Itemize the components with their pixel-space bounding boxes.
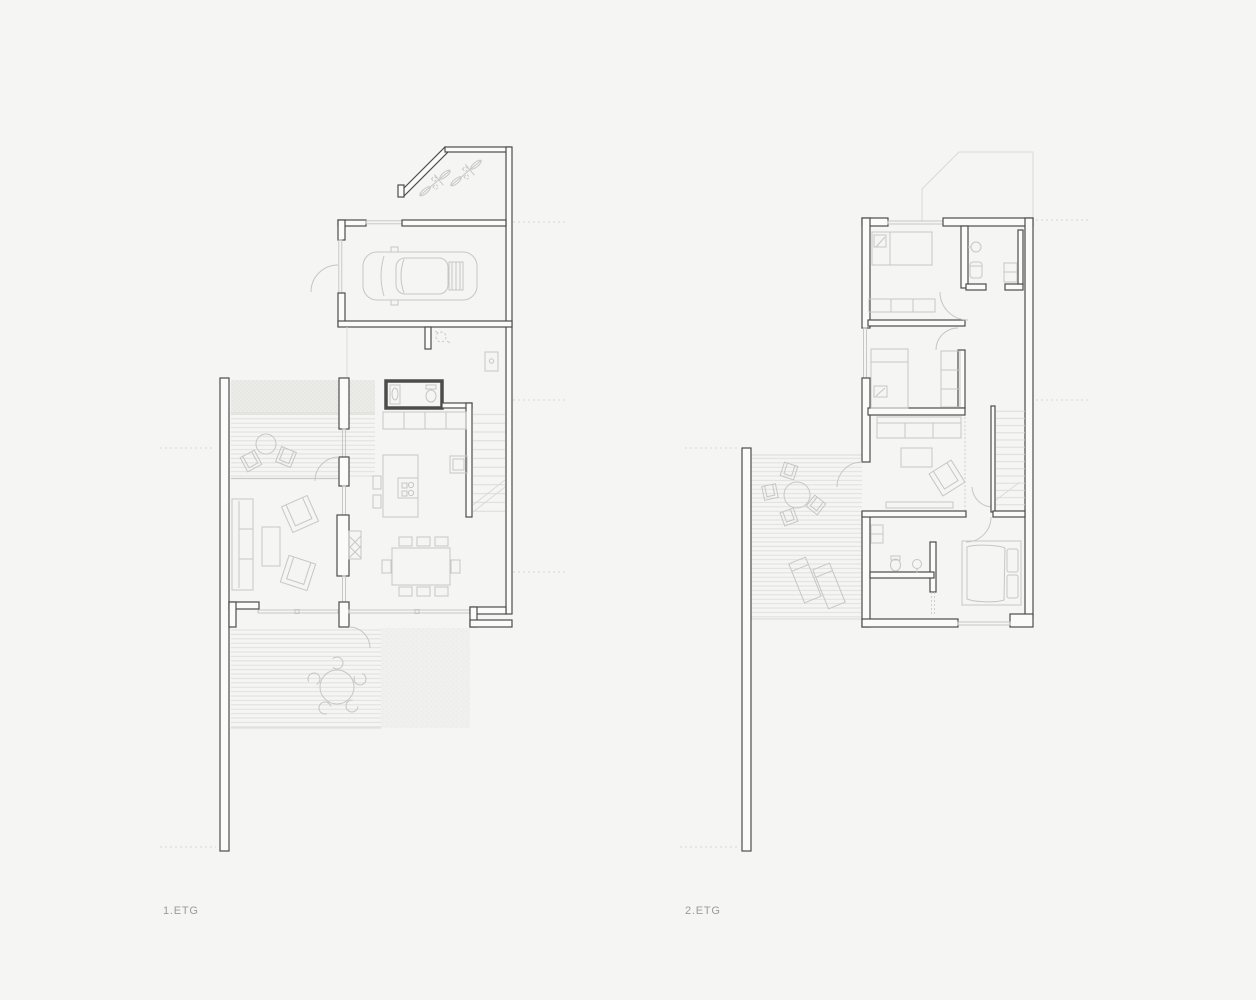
master-bedroom: [962, 517, 1021, 605]
coffee-table: [901, 448, 932, 467]
roof-terrace: [751, 455, 862, 619]
living-room: [232, 496, 318, 591]
kitchen-island: [373, 455, 418, 517]
bathroom: [386, 381, 442, 408]
armchair-icon: [282, 496, 319, 533]
dining-table: [392, 548, 450, 585]
site-wall-2: [742, 448, 751, 851]
floor-plan-1: [220, 147, 512, 851]
wc-icon: [435, 331, 450, 343]
cabinet-icon: [871, 525, 883, 543]
toilet-icon: [970, 262, 982, 278]
dining-area: [382, 537, 460, 596]
bedroom-2: [868, 328, 965, 415]
armchair-icon: [280, 555, 315, 590]
floor-plan-2: [742, 152, 1033, 851]
floor-plan-drawing: [0, 0, 1256, 1000]
bathroom-2: [870, 525, 936, 615]
kitchen: [373, 403, 472, 517]
garage-door-swing: [311, 265, 338, 292]
suite-wall: [862, 511, 966, 517]
gravel-patch: [381, 628, 470, 728]
appliance-icon: [485, 352, 498, 371]
bedroom-1: [868, 226, 968, 326]
door-swing: [936, 328, 958, 350]
staircase-1: [473, 408, 505, 515]
closet-icon: [941, 351, 960, 407]
east-wall: [506, 147, 512, 614]
wardrobe-icon: [869, 299, 935, 312]
staircase-2: [991, 406, 1025, 512]
ghost-outline-below: [922, 152, 1033, 222]
bed-icon: [872, 232, 932, 265]
entry-hall: [347, 327, 498, 378]
bicycle-icon: [446, 155, 486, 191]
tv-bench: [886, 502, 953, 508]
suite-wall: [993, 511, 1025, 517]
armchair-icon: [929, 460, 965, 496]
garage: [311, 220, 512, 327]
pedestal-sink-icon: [913, 560, 922, 574]
tv-lounge: [877, 417, 993, 510]
toilet-icon: [891, 556, 901, 571]
side-deck: [231, 380, 375, 479]
oven-icon: [450, 456, 467, 473]
sofa-icon: [877, 417, 961, 438]
floor-2-label: 2.ETG: [685, 905, 721, 917]
site-wall-1: [220, 378, 229, 851]
sink-icon: [390, 385, 400, 404]
bathroom-1: [966, 230, 1023, 290]
sofa-icon: [232, 499, 253, 590]
bike-shed: [398, 147, 511, 201]
floor-1-label: 1.ETG: [163, 905, 199, 917]
door-swing: [966, 517, 991, 542]
kitchen-cabinets: [383, 412, 466, 429]
bed-icon: [871, 349, 908, 408]
coffee-table: [262, 527, 280, 566]
door-swing: [972, 487, 993, 507]
fireplace-icon: [349, 531, 361, 559]
garden-terrace: [231, 628, 470, 728]
master-bed-icon: [962, 541, 1021, 605]
toilet-icon: [426, 385, 436, 402]
cooktop-icon: [398, 478, 418, 498]
stool-icon: [373, 495, 381, 508]
cabinet-icon: [1004, 263, 1017, 282]
sink-icon: [968, 242, 981, 252]
door-swing: [940, 292, 968, 320]
car-icon: [363, 247, 477, 305]
